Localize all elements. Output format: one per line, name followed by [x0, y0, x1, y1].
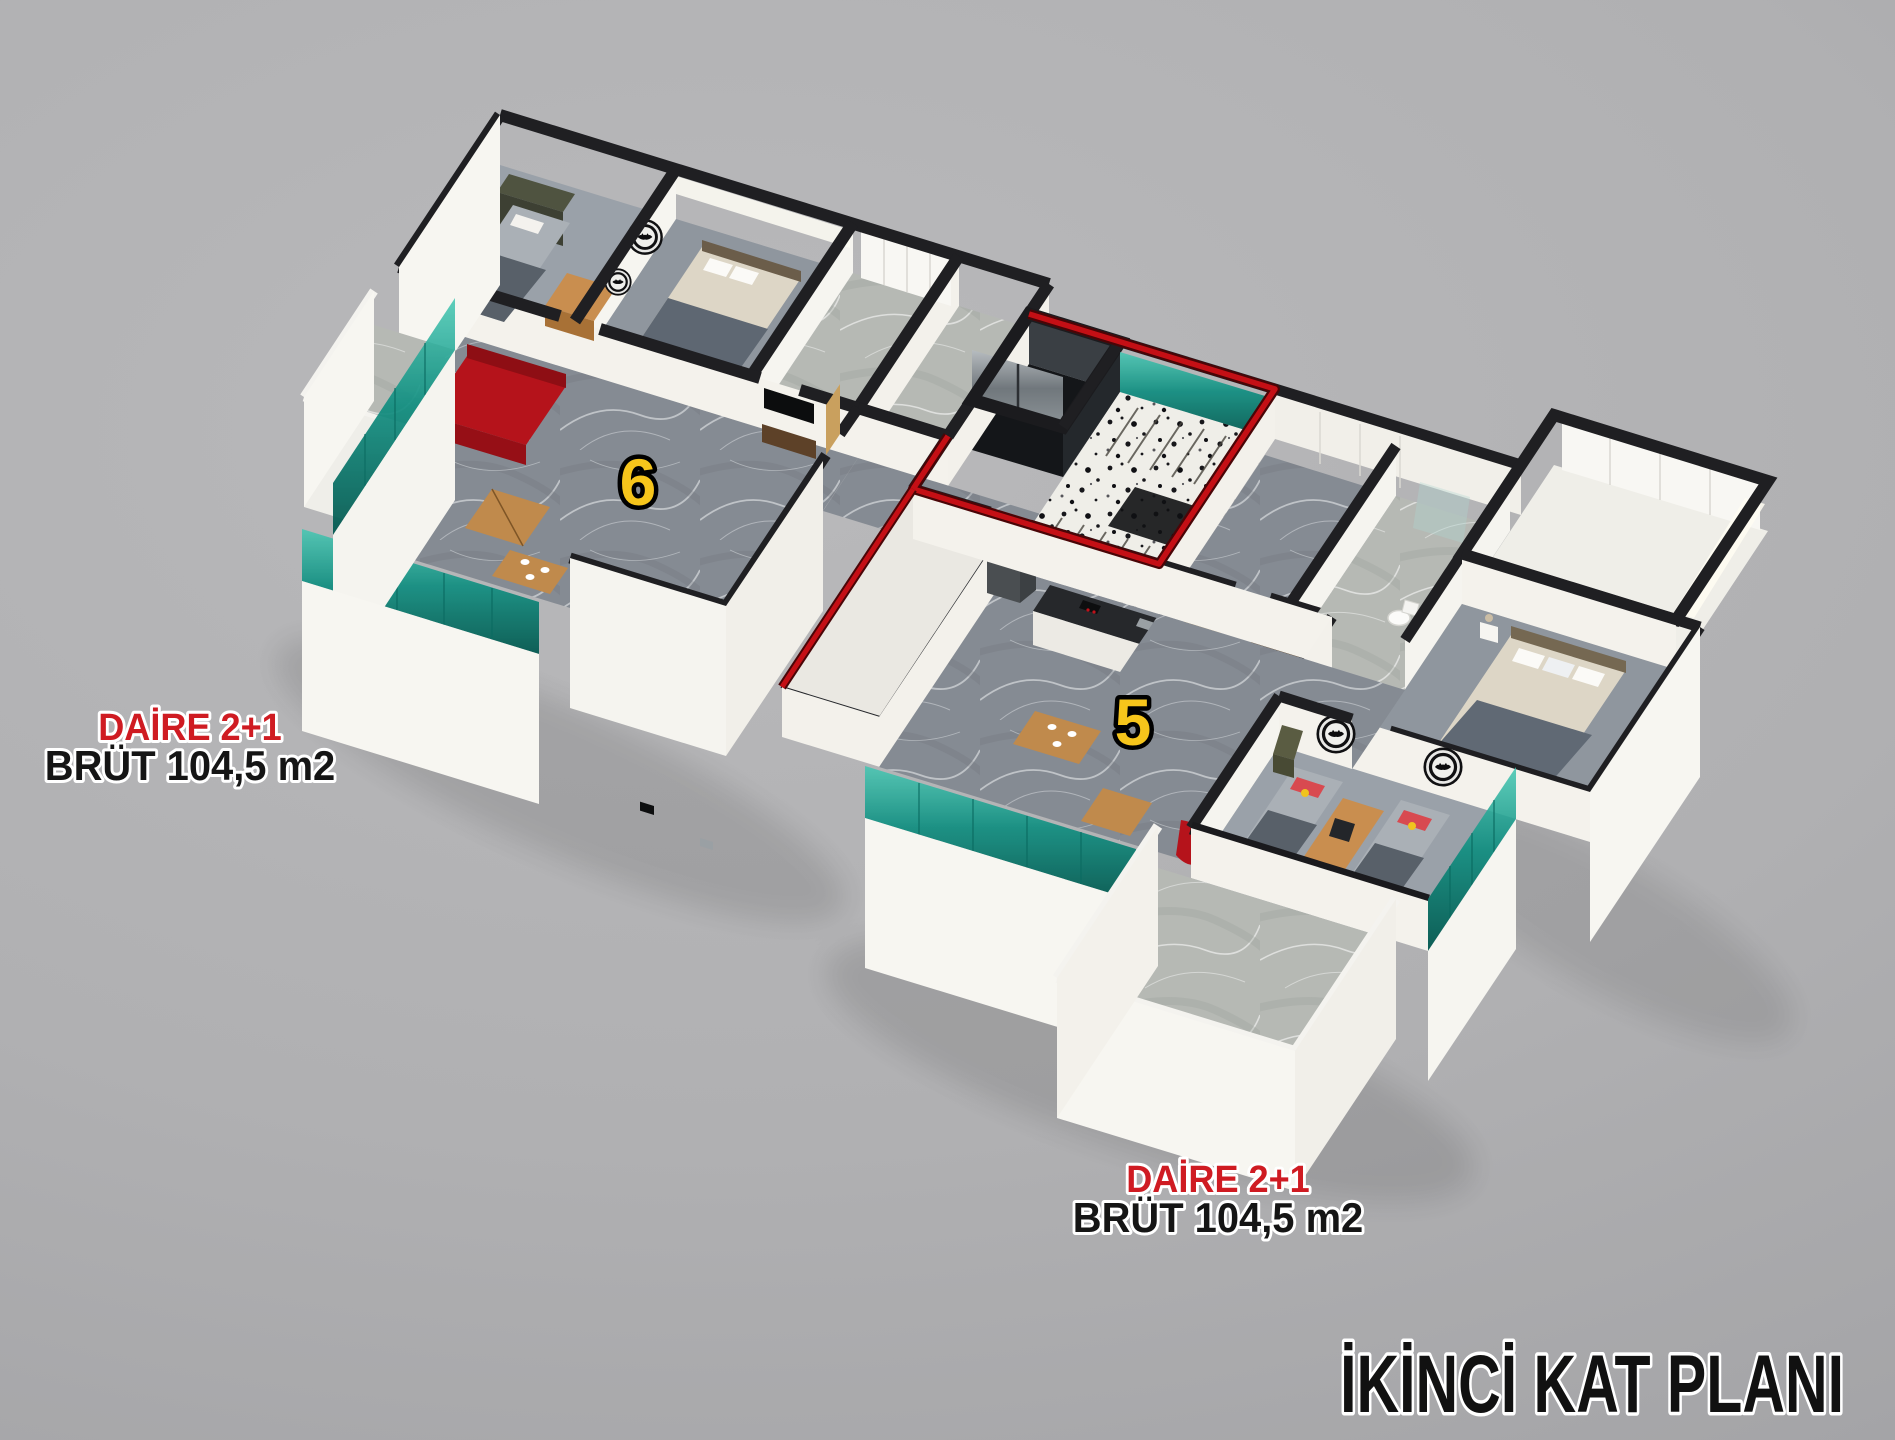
unit-badge-6: 6	[620, 445, 657, 519]
unit-label-bottom-area: BRÜT 104,5 m2	[1073, 1194, 1363, 1241]
floor-title: İKİNCİ KAT PLANI	[1340, 1339, 1844, 1431]
floor-plan-3d-render: 6 5 DAİRE 2+1 BRÜT 104,5 m2 DAİRE 2+1 BR…	[0, 0, 1895, 1440]
unit-label-left: DAİRE 2+1 BRÜT 104,5 m2	[45, 705, 335, 789]
floor-plan-page: 6 5 DAİRE 2+1 BRÜT 104,5 m2 DAİRE 2+1 BR…	[0, 0, 1895, 1440]
unit-label-left-area: BRÜT 104,5 m2	[45, 742, 335, 789]
lamp	[1485, 614, 1493, 622]
unit-badge-5: 5	[1115, 685, 1152, 759]
floor-title-text: İKİNCİ KAT PLANI	[1340, 1339, 1844, 1431]
